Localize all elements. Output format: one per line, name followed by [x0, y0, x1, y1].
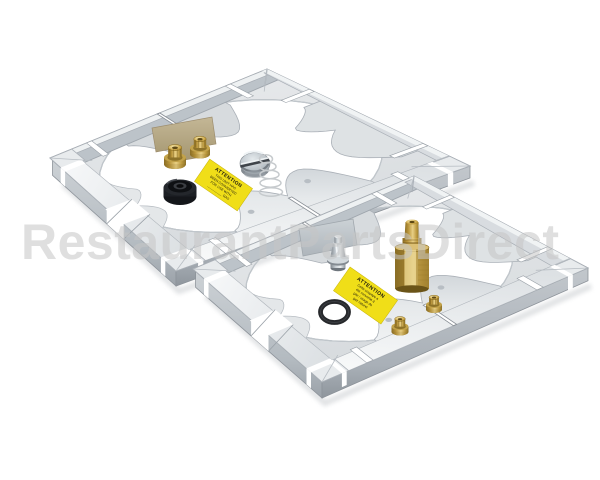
svg-text:RestaurantPartsDirect: RestaurantPartsDirect: [21, 214, 559, 270]
